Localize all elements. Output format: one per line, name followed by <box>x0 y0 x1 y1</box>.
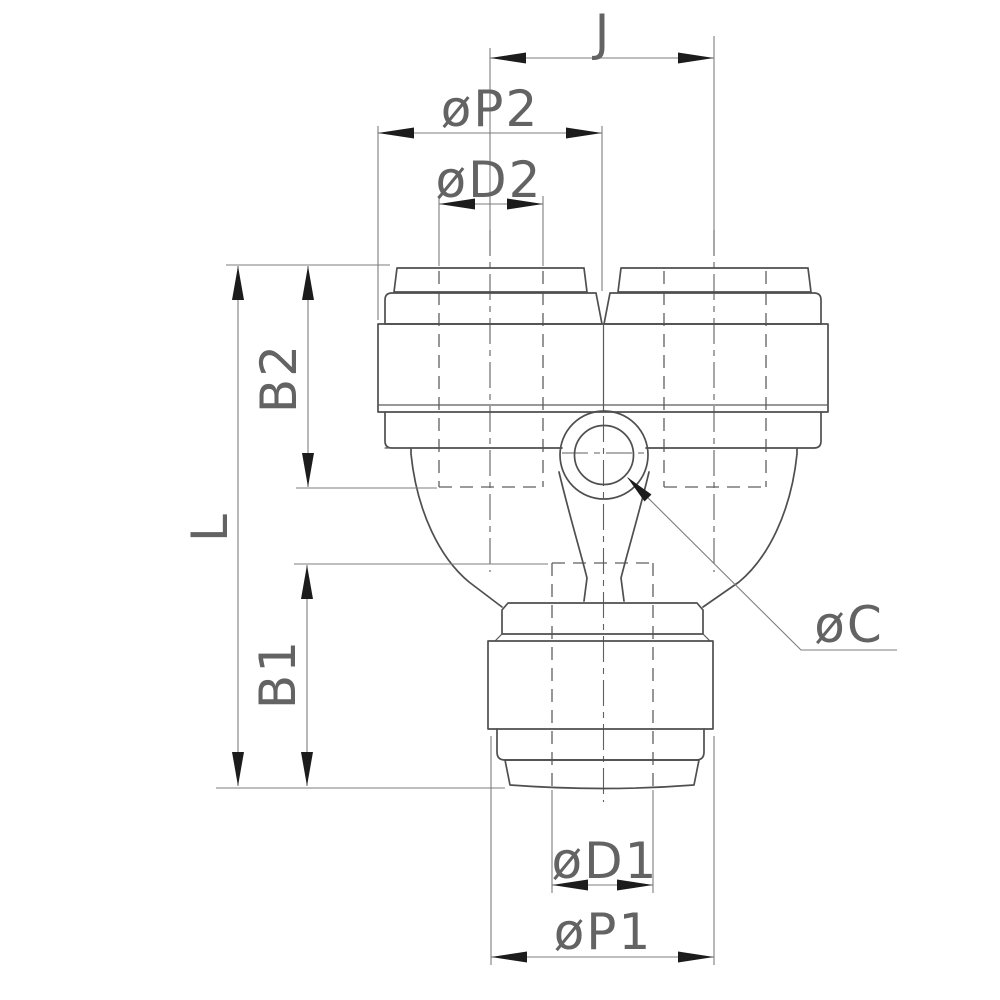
right-branch-collar <box>604 293 821 324</box>
arrowhead <box>378 128 414 139</box>
dimension-d2-label: øD2 <box>436 151 543 209</box>
dimension-p2-label: øP2 <box>441 80 540 138</box>
y-outer-left <box>411 448 502 607</box>
arrowhead <box>232 266 244 300</box>
arrowhead <box>302 453 314 487</box>
left-lower-collar <box>385 412 562 448</box>
dimension-d2: øD2 <box>436 151 543 266</box>
y-web-left <box>559 472 587 601</box>
arrowhead <box>490 53 526 64</box>
dimension-b2-label: B2 <box>250 343 308 413</box>
arrowhead <box>232 752 244 786</box>
dimension-b2: B2 <box>250 266 314 487</box>
port-release-cap <box>505 760 699 789</box>
port-body-band <box>488 641 713 729</box>
dimension-p1-label: øP1 <box>554 903 653 961</box>
dimension-b1-label: B1 <box>249 639 307 709</box>
dimension-d1: øD1 <box>552 790 659 893</box>
dimension-l-label: L <box>181 512 239 542</box>
dimension-c-label: øC <box>814 596 884 654</box>
centerlines <box>490 230 714 802</box>
arrowhead <box>302 266 314 300</box>
arrowhead <box>566 128 602 139</box>
dimension-l: L <box>181 266 244 786</box>
dimension-j-label: J <box>592 4 612 62</box>
left-branch-collar <box>385 293 602 324</box>
right-lower-collar <box>646 412 821 448</box>
arrowhead <box>678 53 714 64</box>
arrowhead <box>491 952 527 963</box>
port-top-collar <box>502 603 703 634</box>
arrowhead <box>301 752 313 786</box>
port-step-collar <box>497 729 704 760</box>
dimension-d1-label: øD1 <box>552 832 659 890</box>
dimension-c: øC <box>627 477 897 654</box>
arrowhead <box>301 565 313 599</box>
y-fitting-drawing: J øP2 øD2 B2 L <box>0 0 1000 1000</box>
dimension-b1: B1 <box>249 565 313 786</box>
arrowhead <box>678 952 714 963</box>
y-outer-right <box>703 448 797 607</box>
technical-drawing-canvas: J øP2 øD2 B2 L <box>0 0 1000 1000</box>
